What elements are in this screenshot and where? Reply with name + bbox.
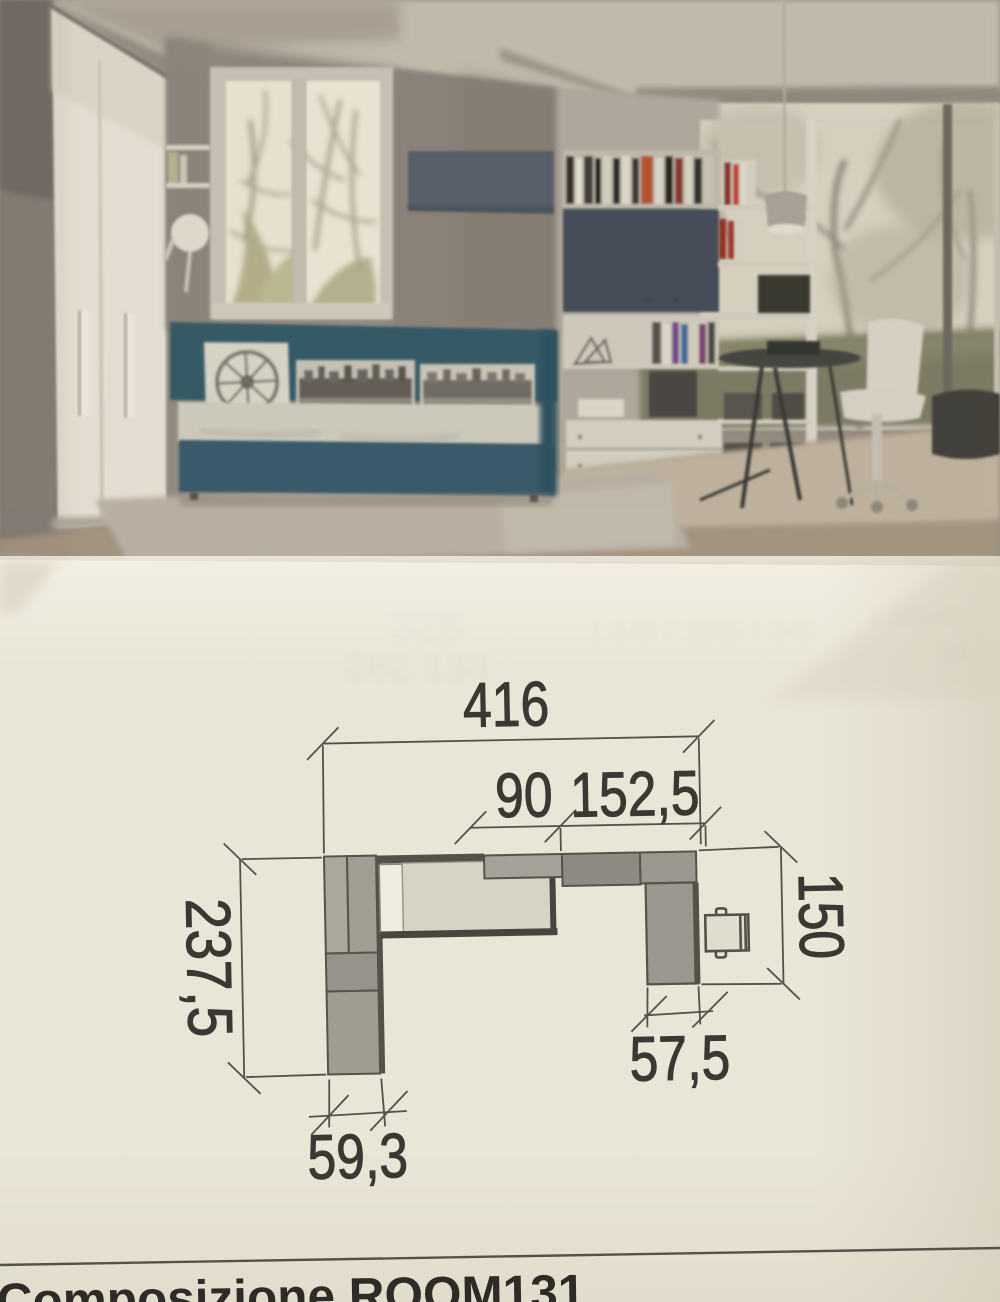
svg-text:328: 328: [390, 601, 463, 650]
svg-text:1 840 7 2005 4 840: 1 840 7 2005 4 840: [590, 616, 814, 646]
svg-text:23: 23: [940, 636, 969, 666]
svg-text:1 80040: 1 80040: [868, 601, 962, 631]
svg-text:57,5: 57,5: [629, 1023, 731, 1095]
svg-text:237,5: 237,5: [172, 898, 246, 1038]
svg-text:90: 90: [494, 760, 553, 831]
svg-text:59,3: 59,3: [307, 1121, 409, 1193]
svg-text:152,5: 152,5: [570, 759, 701, 831]
svg-text:150: 150: [785, 872, 857, 959]
svg-text:416: 416: [462, 669, 549, 741]
